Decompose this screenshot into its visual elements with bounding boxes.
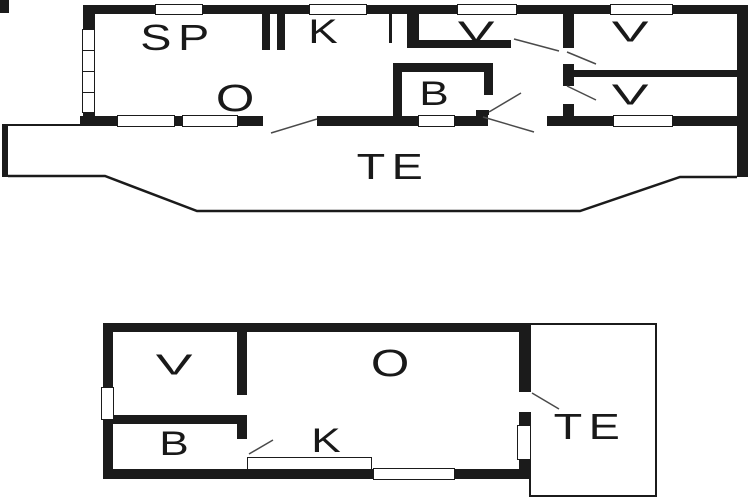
door-swing [567,52,596,64]
door-swing [567,86,596,100]
door-swing [271,119,317,133]
room-label-k-lower: K [311,424,344,458]
floor-plan-canvas: SP K O B V V V TE V O B K TE [0,0,750,500]
room-label-terrace: TE [357,149,430,185]
room-label-o: O [216,80,258,118]
thin-line-overlay [0,0,750,500]
room-label-v1: V [458,19,500,48]
room-label-v-lower: V [156,352,198,381]
room-label-o-lower: O [371,345,413,383]
room-label-k: K [308,15,341,49]
door-swing [514,39,559,51]
room-label-terrace-lower: TE [554,409,627,445]
room-label-sp: SP [140,20,215,56]
door-swing [483,117,534,132]
door-swing [489,93,521,112]
room-label-b-lower: B [159,427,192,461]
room-label-v2: V [612,19,654,48]
door-swing [249,440,273,454]
room-label-b: B [419,77,452,111]
room-label-v3: V [612,82,654,111]
